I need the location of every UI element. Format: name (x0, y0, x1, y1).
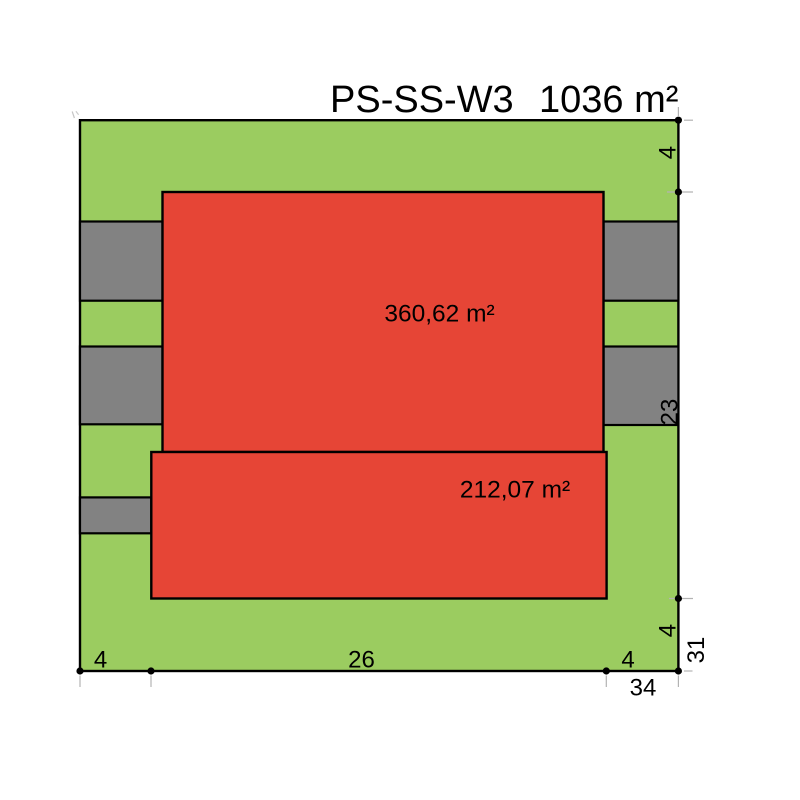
svg-text:PS-SS-W3: PS-SS-W3 (330, 79, 514, 121)
svg-text:34: 34 (630, 675, 657, 702)
svg-text:4: 4 (94, 647, 107, 674)
svg-text:360,62 m²: 360,62 m² (384, 301, 494, 328)
svg-text:212,07 m²: 212,07 m² (460, 477, 570, 504)
svg-text:31: 31 (683, 637, 710, 664)
svg-text:23: 23 (657, 399, 684, 426)
svg-text:4: 4 (655, 624, 682, 637)
svg-text:4: 4 (621, 647, 634, 674)
svg-text:1036 m²: 1036 m² (539, 79, 678, 121)
svg-text:26: 26 (348, 647, 375, 674)
svg-text:4: 4 (655, 146, 682, 159)
